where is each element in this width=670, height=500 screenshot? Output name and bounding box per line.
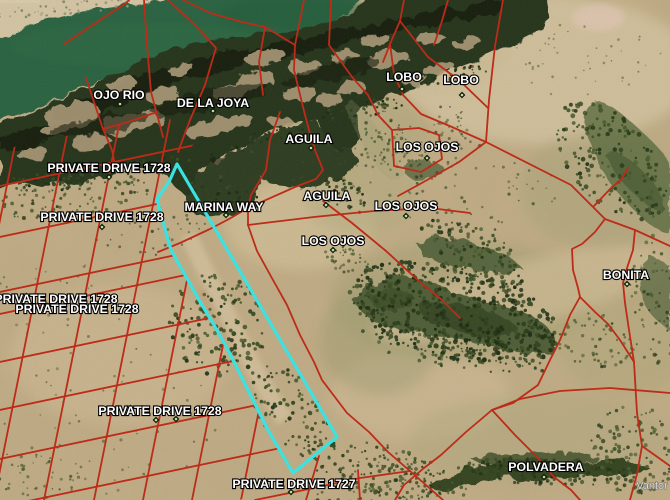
svg-text:AGUILA: AGUILA	[303, 189, 350, 203]
svg-text:PRIVATE DRIVE 1728: PRIVATE DRIVE 1728	[47, 161, 170, 175]
svg-text:LOBO: LOBO	[443, 73, 479, 87]
svg-text:LOS OJOS: LOS OJOS	[302, 234, 365, 248]
svg-text:Vantor: Vantor	[636, 480, 668, 492]
svg-text:OJO RIO: OJO RIO	[93, 88, 145, 102]
svg-text:LOS OJOS: LOS OJOS	[375, 199, 438, 213]
svg-text:PRIVATE DRIVE 1727: PRIVATE DRIVE 1727	[232, 477, 355, 491]
svg-text:POLVADERA: POLVADERA	[508, 460, 583, 474]
svg-text:PRIVATE DRIVE 1728: PRIVATE DRIVE 1728	[15, 302, 138, 316]
svg-text:AGUILA: AGUILA	[285, 132, 332, 146]
svg-text:MARINA WAY: MARINA WAY	[184, 200, 263, 214]
svg-text:PRIVATE DRIVE 1728: PRIVATE DRIVE 1728	[40, 210, 163, 224]
svg-text:LOBO: LOBO	[386, 70, 422, 84]
svg-text:BONITA: BONITA	[603, 268, 649, 282]
svg-text:PRIVATE DRIVE 1728: PRIVATE DRIVE 1728	[98, 404, 221, 418]
svg-text:LOS OJOS: LOS OJOS	[396, 140, 459, 154]
